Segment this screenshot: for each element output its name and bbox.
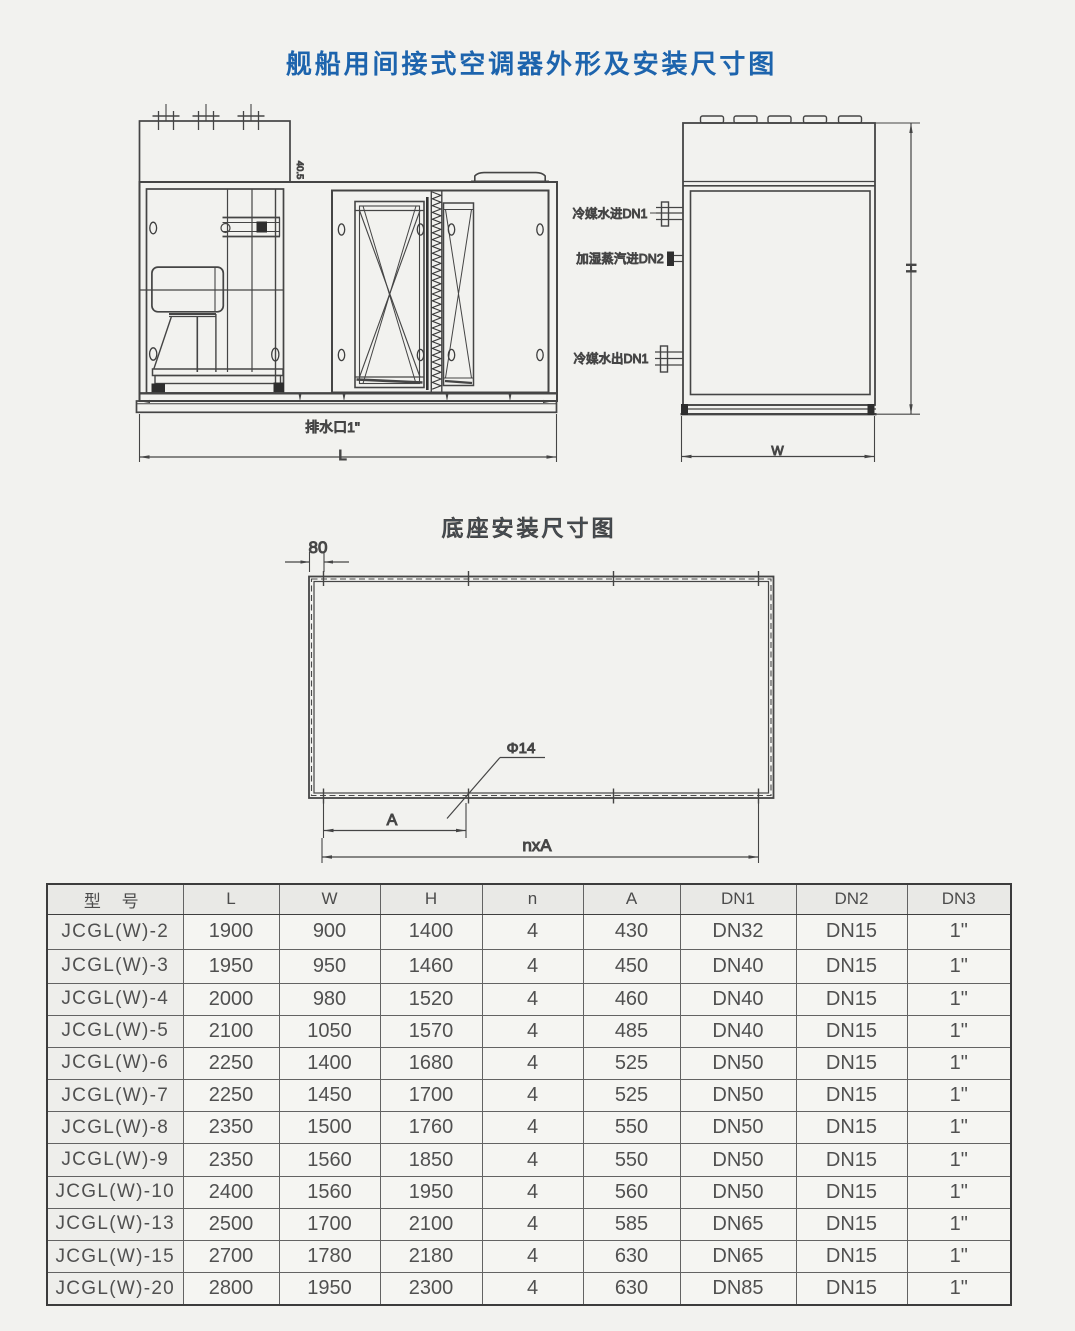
svg-text:冷媒水进DN1: 冷媒水进DN1 [572,207,647,221]
svg-text:nxA: nxA [522,836,552,855]
svg-text:W: W [771,443,784,458]
svg-text:H: H [903,263,919,273]
svg-text:40.5: 40.5 [294,161,305,180]
svg-text:A: A [387,812,398,829]
svg-text:Φ14: Φ14 [507,740,536,757]
svg-text:冷媒水出DN1: 冷媒水出DN1 [573,352,648,366]
svg-text:80: 80 [309,538,328,557]
svg-text:排水口1": 排水口1" [305,419,360,435]
svg-text:底座安装尺寸图: 底座安装尺寸图 [441,516,616,541]
svg-text:加湿蒸汽进DN2: 加湿蒸汽进DN2 [576,251,664,266]
svg-text:L: L [338,447,346,464]
